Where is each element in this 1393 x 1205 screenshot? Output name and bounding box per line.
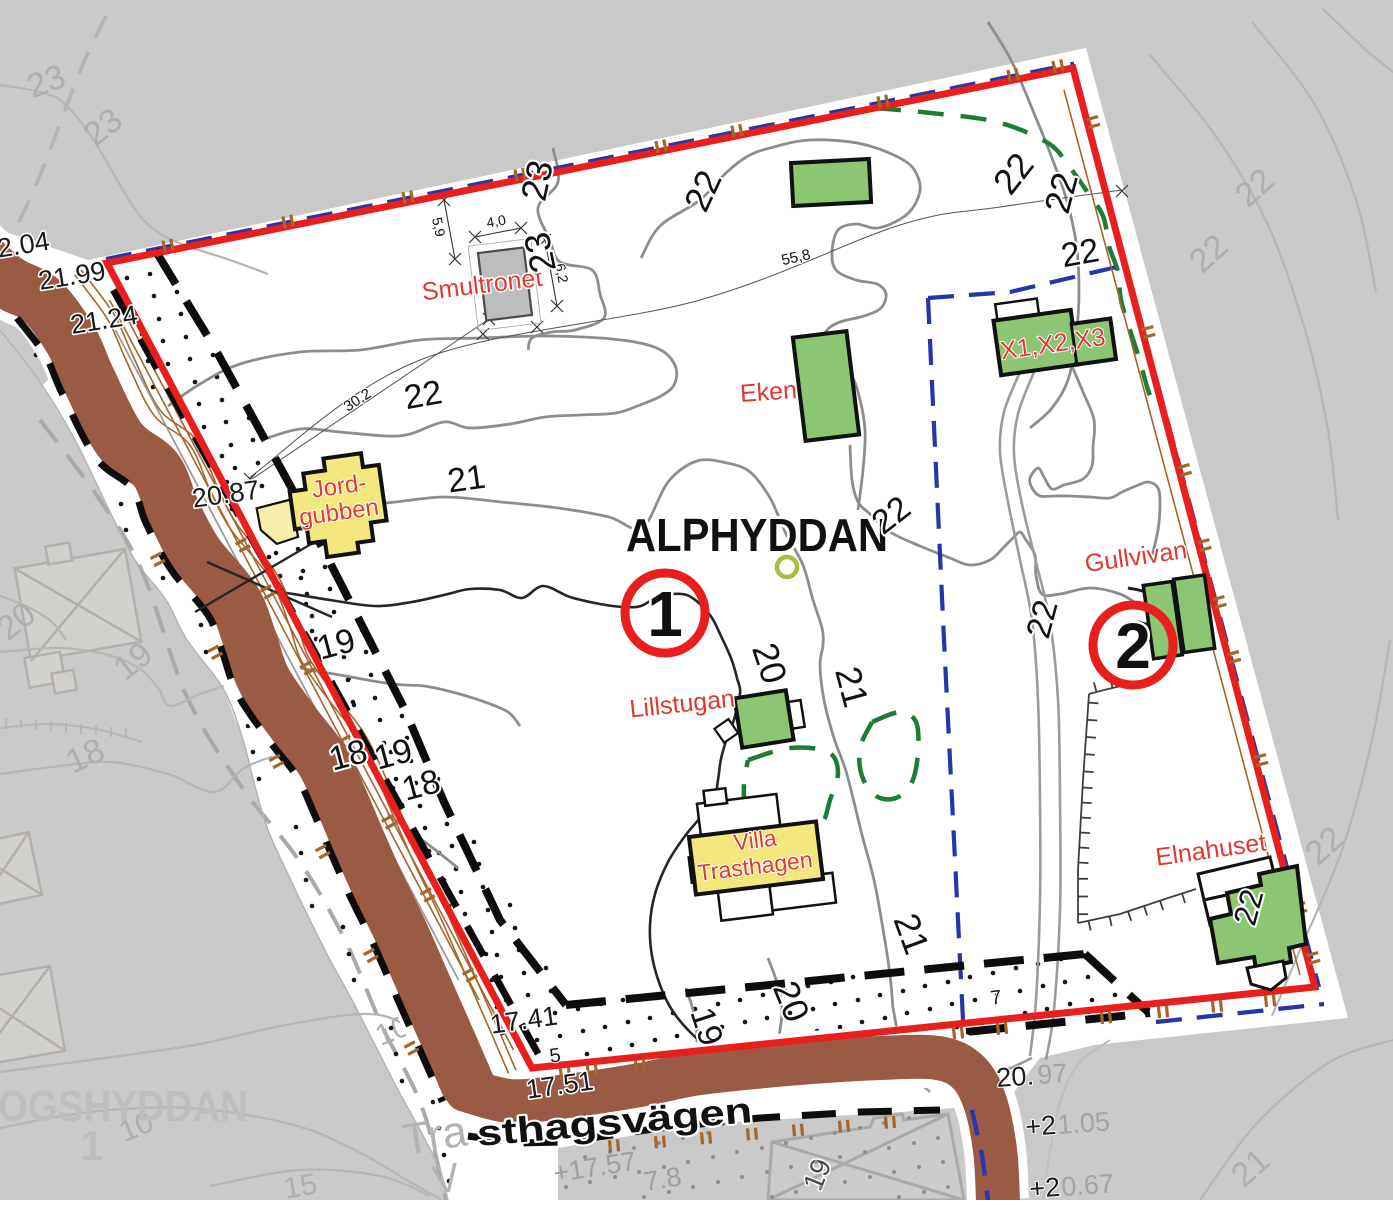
svg-text:20.: 20. — [995, 1060, 1035, 1093]
svg-text:1: 1 — [647, 578, 683, 650]
svg-text:OGSHYDDAN: OGSHYDDAN — [0, 1082, 248, 1131]
svg-text:+2: +2 — [1028, 1172, 1061, 1200]
svg-text:22: 22 — [401, 373, 445, 417]
svg-text:ALPHYDDAN: ALPHYDDAN — [626, 509, 888, 561]
svg-text:97: 97 — [1036, 1058, 1068, 1090]
svg-text:22: 22 — [1058, 231, 1102, 275]
svg-text:2: 2 — [1115, 610, 1151, 682]
svg-text:23: 23 — [513, 157, 561, 205]
svg-text:+2: +2 — [1024, 1110, 1057, 1142]
svg-text:23: 23 — [516, 229, 564, 277]
svg-text:1: 1 — [80, 1122, 103, 1169]
svg-text:7.8: 7.8 — [642, 1161, 684, 1197]
svg-text:15: 15 — [281, 1167, 320, 1200]
svg-text:Tra: Tra — [399, 1106, 471, 1165]
svg-text:0.67: 0.67 — [1060, 1168, 1115, 1200]
svg-text:1.05: 1.05 — [1056, 1106, 1111, 1140]
svg-text:21: 21 — [445, 458, 488, 501]
svg-text:4,0: 4,0 — [485, 211, 507, 230]
svg-text:Eken: Eken — [739, 376, 798, 408]
